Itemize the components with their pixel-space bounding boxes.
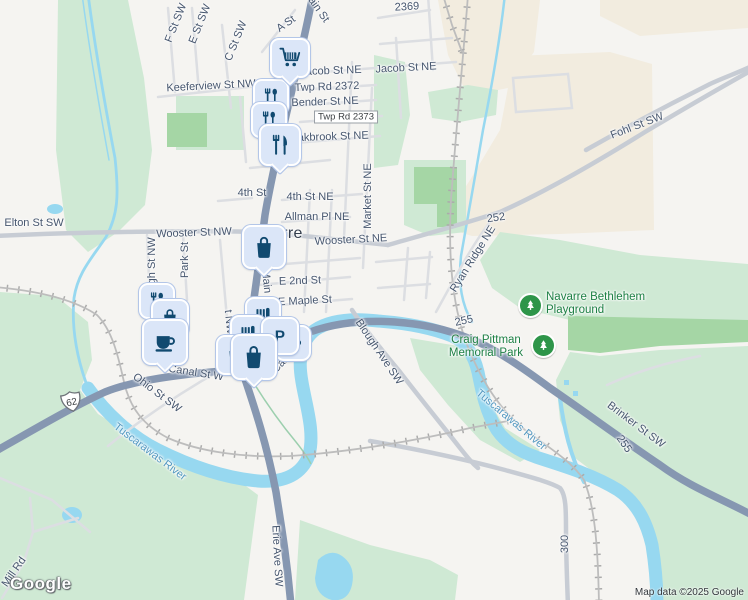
shopping-pin[interactable] <box>231 334 277 380</box>
shopping-icon <box>239 342 268 371</box>
cafe-icon <box>150 327 179 356</box>
restaurant2-icon <box>267 132 294 159</box>
svg-text:62: 62 <box>65 396 78 409</box>
restaurant2-pin[interactable] <box>259 124 301 166</box>
shopping-pin[interactable] <box>242 225 286 269</box>
map-graphics <box>0 0 748 600</box>
grocery-pin[interactable] <box>270 38 310 78</box>
cafe-pin[interactable] <box>142 319 188 365</box>
township-road-label: Twp Rd 2373 <box>314 111 378 124</box>
park-poi-icon[interactable] <box>518 293 543 318</box>
park-poi-icon[interactable] <box>531 333 556 358</box>
shopping-icon <box>250 233 278 261</box>
map-attribution[interactable]: Map data ©2025 Google <box>635 587 744 598</box>
map-canvas[interactable]: F St SWE St SWC St SWA StMain St2369Jaco… <box>0 0 748 600</box>
google-logo[interactable]: Google <box>10 574 72 594</box>
